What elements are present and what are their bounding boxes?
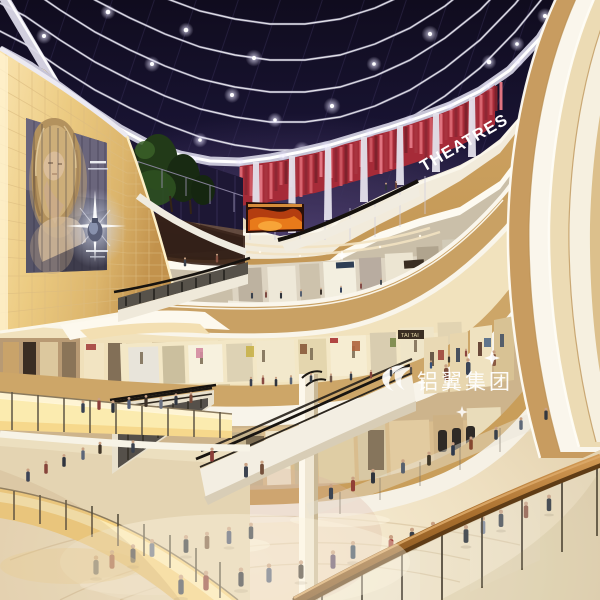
svg-text:TAI TAI: TAI TAI	[401, 333, 419, 339]
svg-text:铝翼集团: 铝翼集团	[417, 371, 513, 394]
